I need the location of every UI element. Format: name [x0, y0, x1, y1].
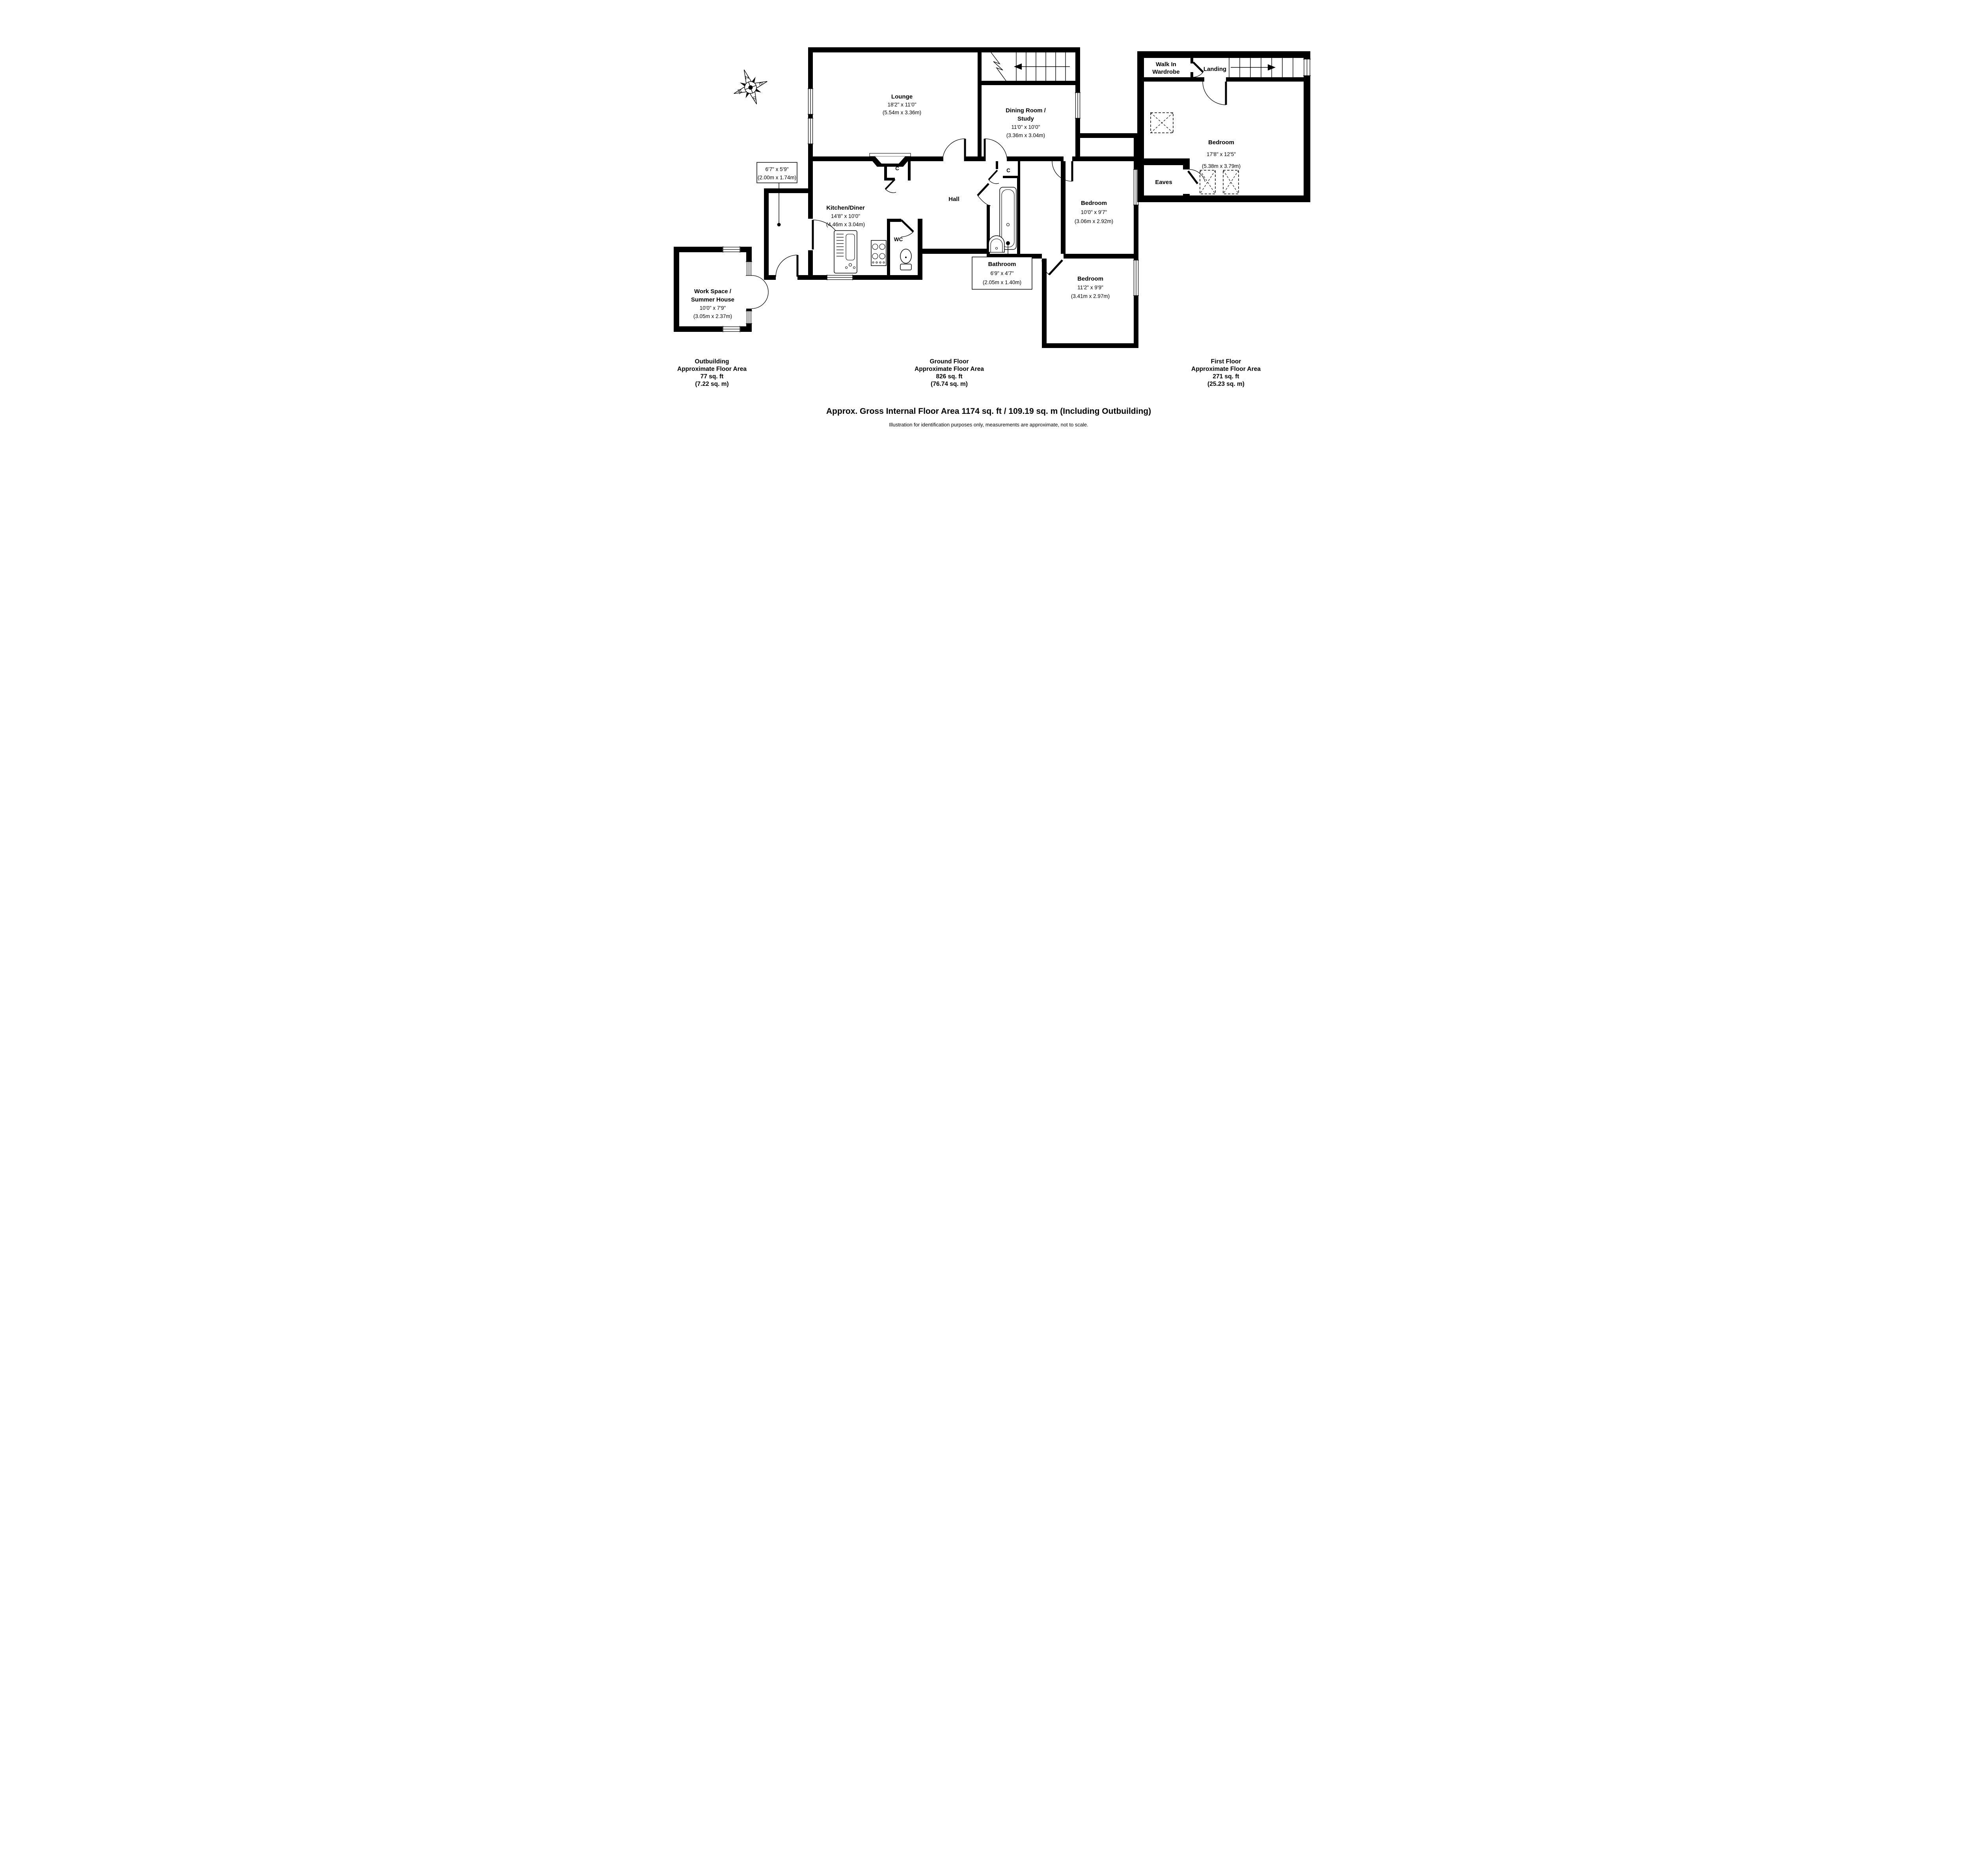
workspace-imperial: 10'0" x 7'9": [700, 305, 726, 311]
stair-direction-arrow: [1014, 63, 1022, 70]
wc-label: WC: [894, 236, 903, 242]
dashed-box-1: [1151, 113, 1173, 133]
caption-ground-line2: Approximate Floor Area: [915, 366, 984, 372]
toilet-fixture: [900, 249, 911, 270]
landing-bedroom-door: [1203, 82, 1226, 105]
kitchen-metric: (4.46m x 3.04m): [826, 221, 865, 227]
fireplace: [868, 153, 912, 167]
caption-first-line4: (25.23 sq. m): [1207, 381, 1244, 387]
lounge-imperial: 18'2" x 11'0": [887, 102, 916, 108]
bathroom-metric: (2.05m x 1.40m): [983, 279, 1021, 285]
workspace-metric: (3.05m x 2.37m): [693, 313, 732, 319]
bathroom-imperial: 6'9" x 4'7": [990, 270, 1013, 276]
caption-outbuilding-line1: Outbuilding: [695, 358, 729, 365]
ff-bedroom-name: Bedroom: [1208, 139, 1234, 146]
wardrobe-door: [1193, 62, 1203, 77]
dashed-box-3: [1223, 170, 1239, 194]
outbuilding-window-bottom: [723, 326, 740, 332]
bedroom1-name: Bedroom: [1081, 200, 1107, 207]
floorplan-canvas: N E S W: [654, 0, 1317, 469]
dining-door: [985, 139, 1007, 161]
stair-break-symbol: [991, 52, 1006, 81]
closet1-label: C: [895, 166, 899, 171]
bathroom-sink: [989, 236, 1004, 252]
first-floor-plan: Walk In Wardrobe Landing Bedroom 17'8" x…: [1137, 51, 1311, 202]
eaves-name: Eaves: [1155, 179, 1172, 186]
hob: [871, 240, 886, 266]
ff-bedroom-imperial: 17'8" x 12'5": [1207, 151, 1236, 157]
caption-outbuilding-line3: 77 sq. ft: [700, 373, 724, 380]
caption-first-line3: 271 sq. ft: [1213, 373, 1239, 380]
bathroom-name: Bathroom: [988, 261, 1016, 268]
bedroom1-metric: (3.06m x 2.92m): [1075, 218, 1113, 224]
porch-dimension-label: 6'7" x 5'9" (2.00m x 1.74m): [757, 162, 797, 227]
closet1-door: [885, 179, 896, 193]
bedroom2-metric: (3.41m x 2.97m): [1071, 293, 1110, 299]
dining-window: [1075, 93, 1081, 118]
lounge-door: [943, 139, 965, 161]
outbuilding-window-top: [723, 246, 740, 253]
closet2-door: [989, 170, 999, 184]
ground-floor-plan: 6'7" x 5'9" (2.00m x 1.74m) Bathroom 6'9…: [757, 47, 1139, 348]
sink-unit: [834, 231, 857, 273]
caption-ground-line4: (76.74 sq. m): [931, 381, 968, 387]
disclaimer-text: Illustration for identification purposes…: [889, 422, 1088, 428]
caption-outbuilding-line2: Approximate Floor Area: [677, 366, 747, 372]
dining-metric: (3.36m x 3.04m): [1006, 132, 1045, 138]
closet2-label: C: [1006, 167, 1010, 173]
kitchen-window: [827, 275, 853, 280]
outbuilding-french-doors: [752, 275, 768, 309]
lounge-metric: (5.54m x 3.36m): [883, 110, 921, 115]
ff-bedroom-metric: (5.38m x 3.79m): [1202, 163, 1241, 169]
bedroom2-name: Bedroom: [1077, 275, 1103, 282]
outbuilding-window-right-1: [746, 262, 752, 275]
floorplan-page: N E S W: [654, 0, 1317, 469]
caption-outbuilding-line4: (7.22 sq. m): [695, 381, 728, 387]
caption-ground-floor: Ground Floor Approximate Floor Area 826 …: [915, 358, 984, 387]
caption-first-floor: First Floor Approximate Floor Area 271 s…: [1191, 358, 1261, 387]
lounge-window-2: [808, 118, 813, 144]
landing-name: Landing: [1203, 66, 1226, 73]
dining-name-1: Dining Room /: [1006, 107, 1046, 114]
eaves-door: [1188, 169, 1205, 184]
caption-first-line1: First Floor: [1211, 358, 1241, 365]
caption-ground-line1: Ground Floor: [930, 358, 969, 365]
outbuilding-plan: Work Space / Summer House 10'0" x 7'9" (…: [674, 246, 768, 332]
lounge-name: Lounge: [891, 93, 913, 100]
porch-metric: (2.00m x 1.74m): [758, 175, 796, 181]
workspace-name-2: Summer House: [691, 296, 734, 303]
hall-name: Hall: [948, 196, 959, 203]
workspace-name-1: Work Space /: [694, 288, 732, 295]
caption-ground-line3: 826 sq. ft: [936, 373, 962, 380]
caption-outbuilding: Outbuilding Approximate Floor Area 77 sq…: [677, 358, 747, 387]
kitchen-imperial: 14'8" x 10'0": [831, 213, 860, 219]
dining-imperial: 11'0" x 10'0": [1011, 124, 1040, 130]
porch-entrance-door: [776, 255, 797, 277]
first-floor-stairs: [1229, 58, 1293, 77]
dining-name-2: Study: [1017, 115, 1034, 122]
porch-imperial: 6'7" x 5'9": [765, 166, 788, 172]
compass-s-label: S: [752, 95, 757, 102]
bedroom1-imperial: 10'0" x 9'7": [1081, 209, 1107, 215]
bathroom-door: [978, 184, 991, 206]
first-floor-window: [1303, 59, 1311, 76]
bedroom2-window: [1133, 260, 1139, 296]
gross-area-summary: Approx. Gross Internal Floor Area 1174 s…: [826, 407, 1151, 416]
wc-door: [901, 220, 913, 237]
dashed-box-2: [1200, 170, 1215, 194]
compass-n-label: N: [744, 74, 750, 81]
wardrobe-name-1: Walk In: [1156, 61, 1176, 68]
kitchen-name: Kitchen/Diner: [826, 205, 865, 211]
bedroom2-imperial: 11'2" x 9'9": [1077, 285, 1103, 290]
outbuilding-window-right-2: [746, 311, 752, 324]
wardrobe-name-2: Wardrobe: [1152, 69, 1179, 75]
compass-rose: N E S W: [727, 64, 773, 110]
ground-stairs: [991, 52, 1070, 81]
lounge-window-1: [808, 89, 813, 114]
caption-first-line2: Approximate Floor Area: [1191, 366, 1261, 372]
